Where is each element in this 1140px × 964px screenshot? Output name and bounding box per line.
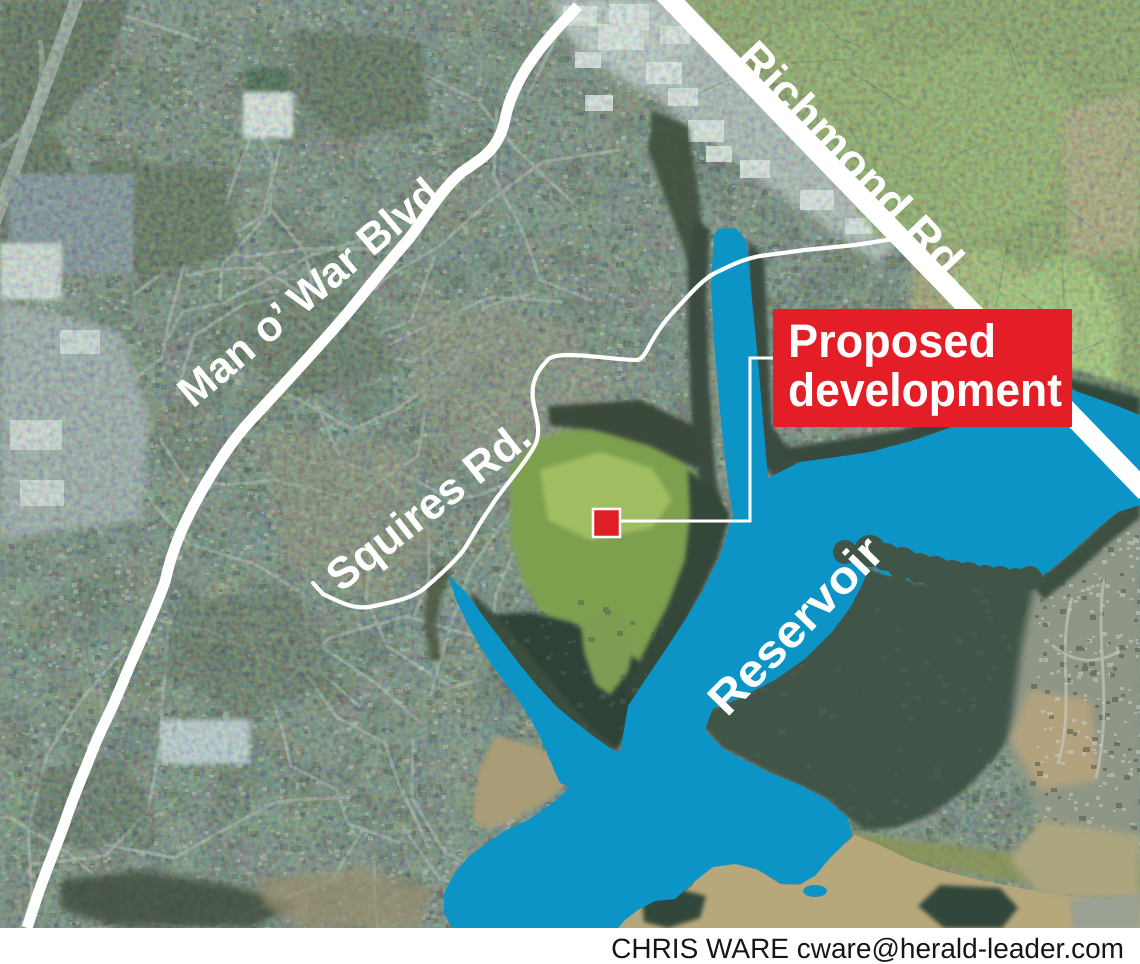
svg-text:development: development	[788, 363, 1062, 416]
svg-text:Proposed: Proposed	[788, 314, 996, 367]
svg-text:CHRIS WARE cware@herald-leader: CHRIS WARE cware@herald-leader.com	[611, 933, 1124, 964]
